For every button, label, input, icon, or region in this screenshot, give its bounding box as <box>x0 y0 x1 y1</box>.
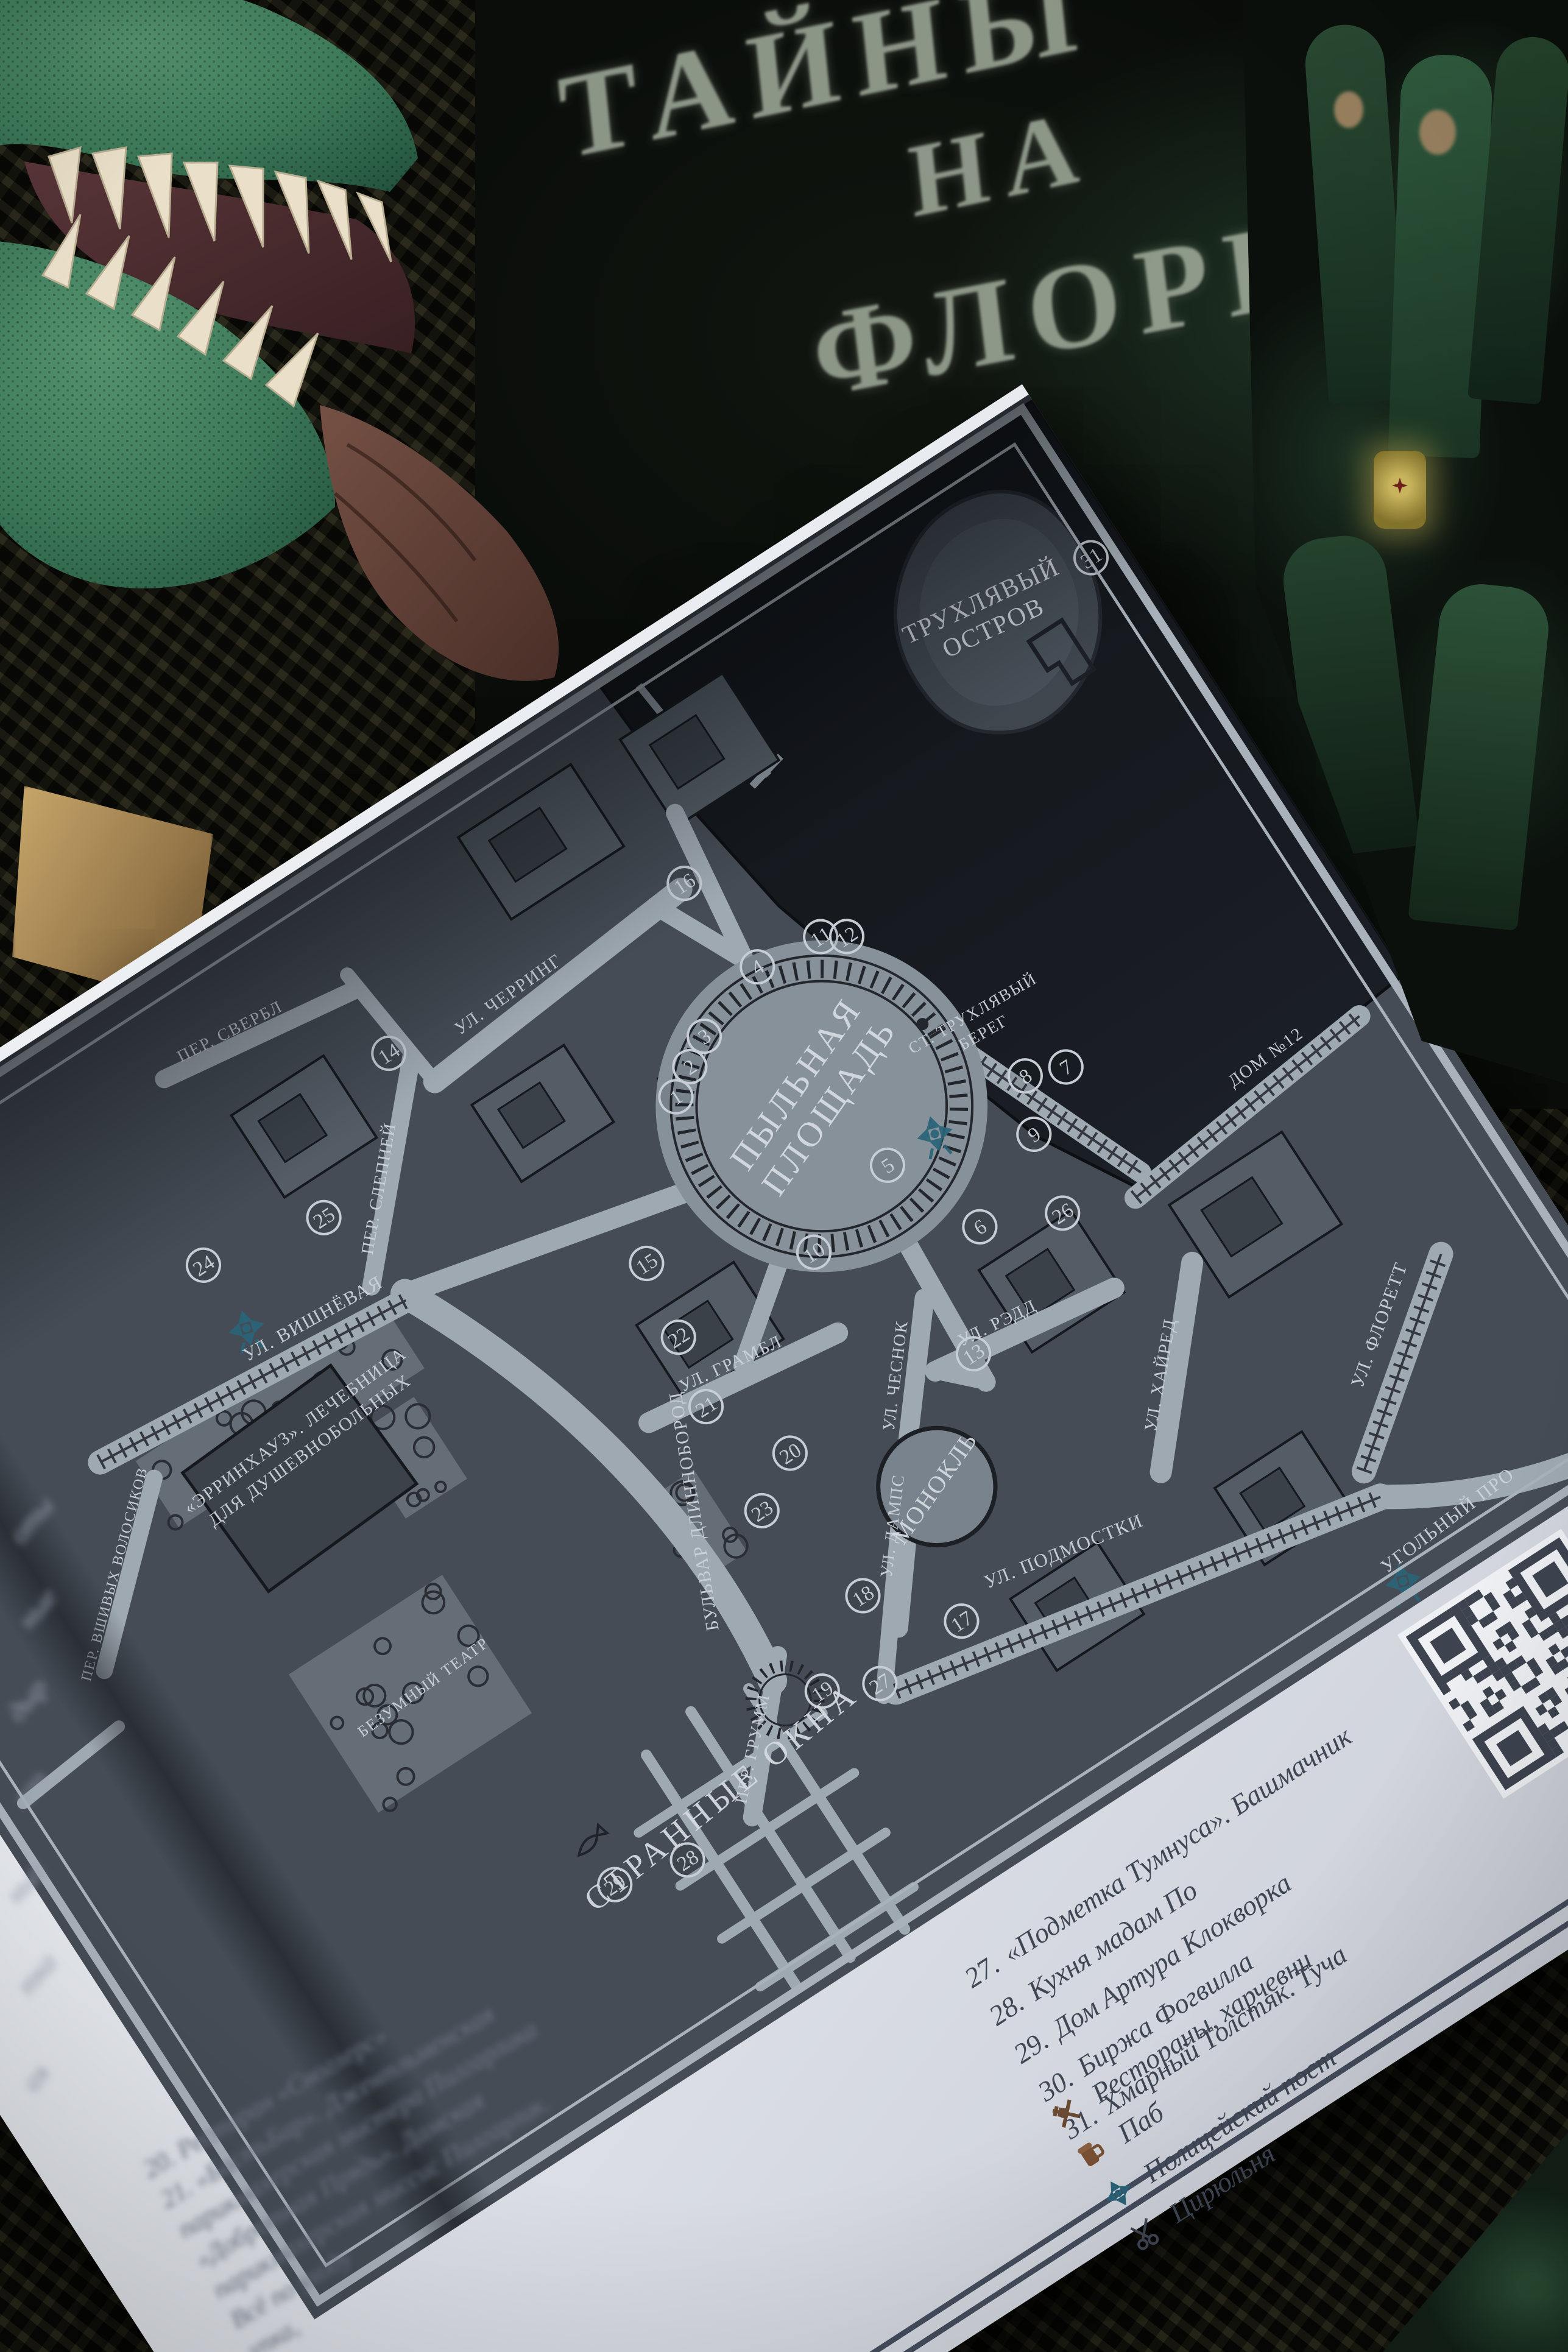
hooded-figure <box>1408 580 1553 931</box>
figure-face <box>1419 110 1456 155</box>
glowing-jar-icon <box>1374 451 1426 529</box>
dragon-arm <box>320 405 559 681</box>
photo: ТАЙНЫ НА ФЛОРЕТТ <box>0 0 1568 2352</box>
dragon-puppet <box>0 0 646 737</box>
corner-cover-art <box>1383 2132 1568 2352</box>
figure-face <box>1334 91 1363 128</box>
